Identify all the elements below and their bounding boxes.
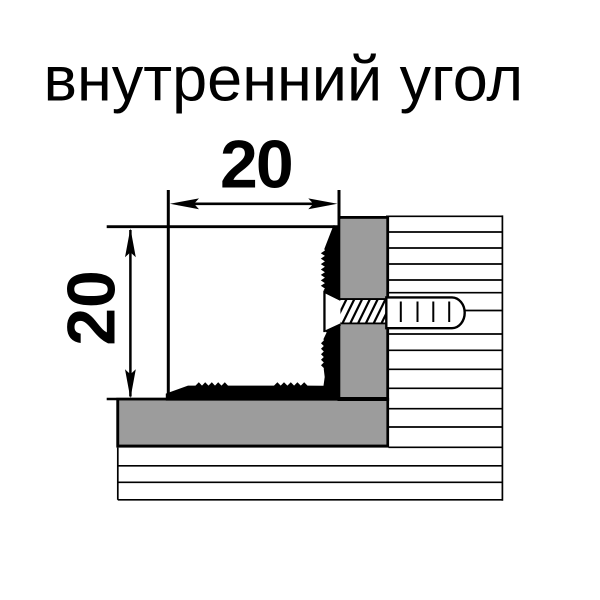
svg-text:внутренний угол: внутренний угол: [44, 45, 524, 115]
svg-text:20: 20: [220, 126, 292, 202]
svg-text:20: 20: [54, 270, 130, 346]
